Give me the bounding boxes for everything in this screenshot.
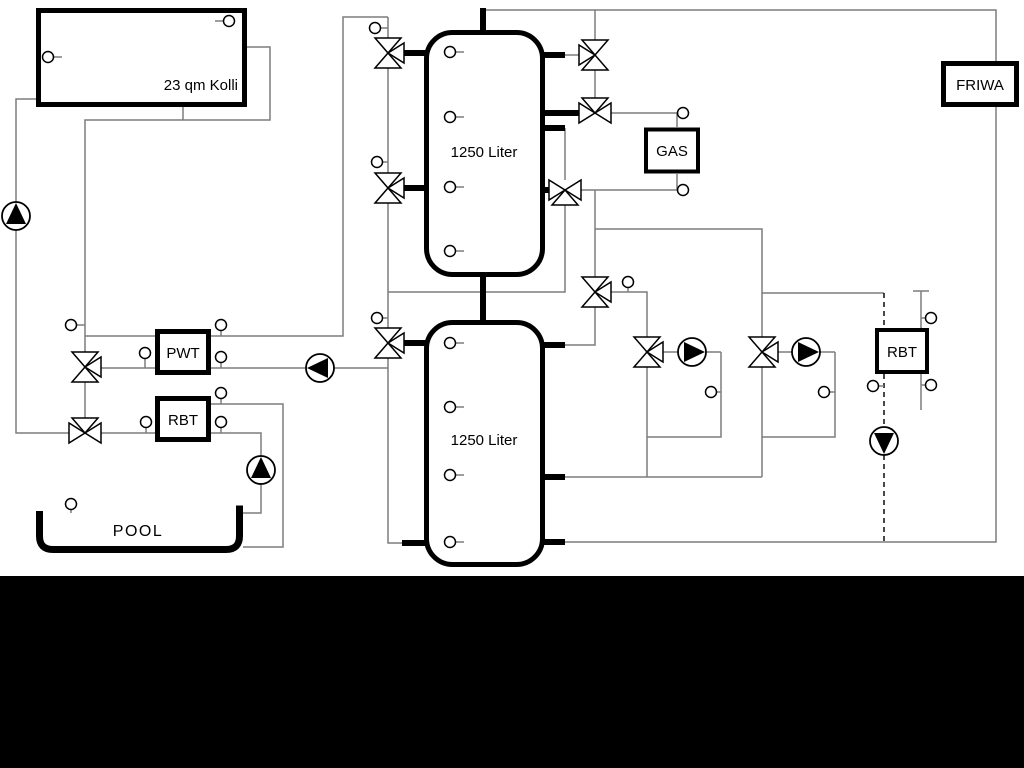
pump-pwt-charge bbox=[306, 354, 334, 382]
pump-solar bbox=[2, 202, 30, 230]
three-way-valve-gas-return bbox=[549, 180, 581, 205]
sensor-solar-supply bbox=[66, 320, 86, 331]
sensor-tankline-mid bbox=[372, 157, 389, 168]
tank-bottom-label: 1250 Liter bbox=[451, 432, 518, 449]
bottom-black-mask bbox=[0, 576, 1024, 768]
pipe-circuit2-loop bbox=[762, 352, 835, 477]
sensor-pwt-right-top bbox=[216, 320, 227, 337]
pipe-valve7-to-gas-top bbox=[611, 113, 677, 127]
rbt-pool-label: RBT bbox=[168, 412, 198, 429]
sensor-circuit1-supply bbox=[623, 277, 634, 293]
gas-label: GAS bbox=[656, 143, 688, 160]
sensor-tankline-top bbox=[370, 23, 389, 34]
three-way-valve-pool-circuit bbox=[69, 418, 101, 443]
hydraulic-diagram: 23 qm Kolli 1250 Liter 1250 Liter PWT RB… bbox=[0, 0, 1024, 768]
pipe-valve9-branch-to-circuit1 bbox=[611, 292, 647, 337]
schematic-canvas: 23 qm Kolli 1250 Liter 1250 Liter PWT RB… bbox=[0, 0, 1024, 768]
rbt-dhw-label: RBT bbox=[887, 344, 917, 361]
sensor-rbt-dhw-right-bottom bbox=[921, 380, 937, 391]
tank1-left-stubs bbox=[402, 53, 426, 188]
sensor-rbt-pool-right-top bbox=[216, 388, 227, 405]
sensor-gas-bottom bbox=[678, 185, 689, 196]
sensor-gas-top bbox=[678, 108, 689, 119]
tank1-right-stubs bbox=[544, 55, 579, 190]
three-way-valve-solar-pwt bbox=[72, 352, 101, 382]
sensor-tankline-low bbox=[372, 313, 389, 324]
sensor-pool bbox=[66, 499, 77, 514]
tank-top-label: 1250 Liter bbox=[451, 144, 518, 161]
three-way-valve-distribution bbox=[582, 277, 611, 307]
three-way-valve-tank2-left bbox=[375, 328, 404, 358]
pump-circuit1 bbox=[678, 338, 706, 366]
pipe-supply-circuit2 bbox=[595, 229, 762, 337]
sensor-circuit1-return bbox=[706, 387, 722, 398]
three-way-valve-tank1-top-right bbox=[579, 40, 608, 70]
three-way-valve-circuit1 bbox=[634, 337, 663, 367]
three-way-valve-tank1-top-left bbox=[375, 38, 404, 68]
friwa-label: FRIWA bbox=[956, 77, 1004, 94]
pipe-collector-left-to-pool-valve bbox=[16, 99, 69, 433]
sensor-circuit2-return bbox=[819, 387, 836, 398]
pump-circuit2 bbox=[792, 338, 820, 366]
pipe-valve8-to-gas-bottom bbox=[581, 174, 677, 190]
three-way-valve-tank1-mid-left bbox=[375, 173, 404, 203]
pipe-tankline-vertical bbox=[388, 17, 402, 543]
pipe-circuit1-loop bbox=[647, 352, 721, 477]
three-way-valve-circuit2 bbox=[749, 337, 778, 367]
pipe-valve9-to-tank2-top bbox=[565, 307, 595, 345]
pwt-label: PWT bbox=[166, 345, 199, 362]
pool-label: POOL bbox=[113, 523, 163, 540]
sensor-rbt-dhw-right-top bbox=[921, 313, 937, 324]
pump-pool bbox=[247, 456, 275, 484]
three-way-valve-gas-supply bbox=[579, 98, 611, 123]
tank2-right-stubs bbox=[544, 345, 565, 542]
collector-label: 23 qm Kolli bbox=[164, 77, 238, 94]
sensor-pwt-left bbox=[140, 348, 151, 369]
tank2-left-stubs bbox=[402, 343, 426, 543]
sensor-rbt-dhw-left bbox=[868, 381, 885, 392]
sensor-rbt-pool-right-bottom bbox=[216, 417, 227, 434]
pump-rbt-dhw bbox=[870, 427, 898, 455]
sensor-pwt-right-bottom bbox=[216, 352, 227, 369]
sensor-rbt-pool-left bbox=[141, 417, 152, 434]
